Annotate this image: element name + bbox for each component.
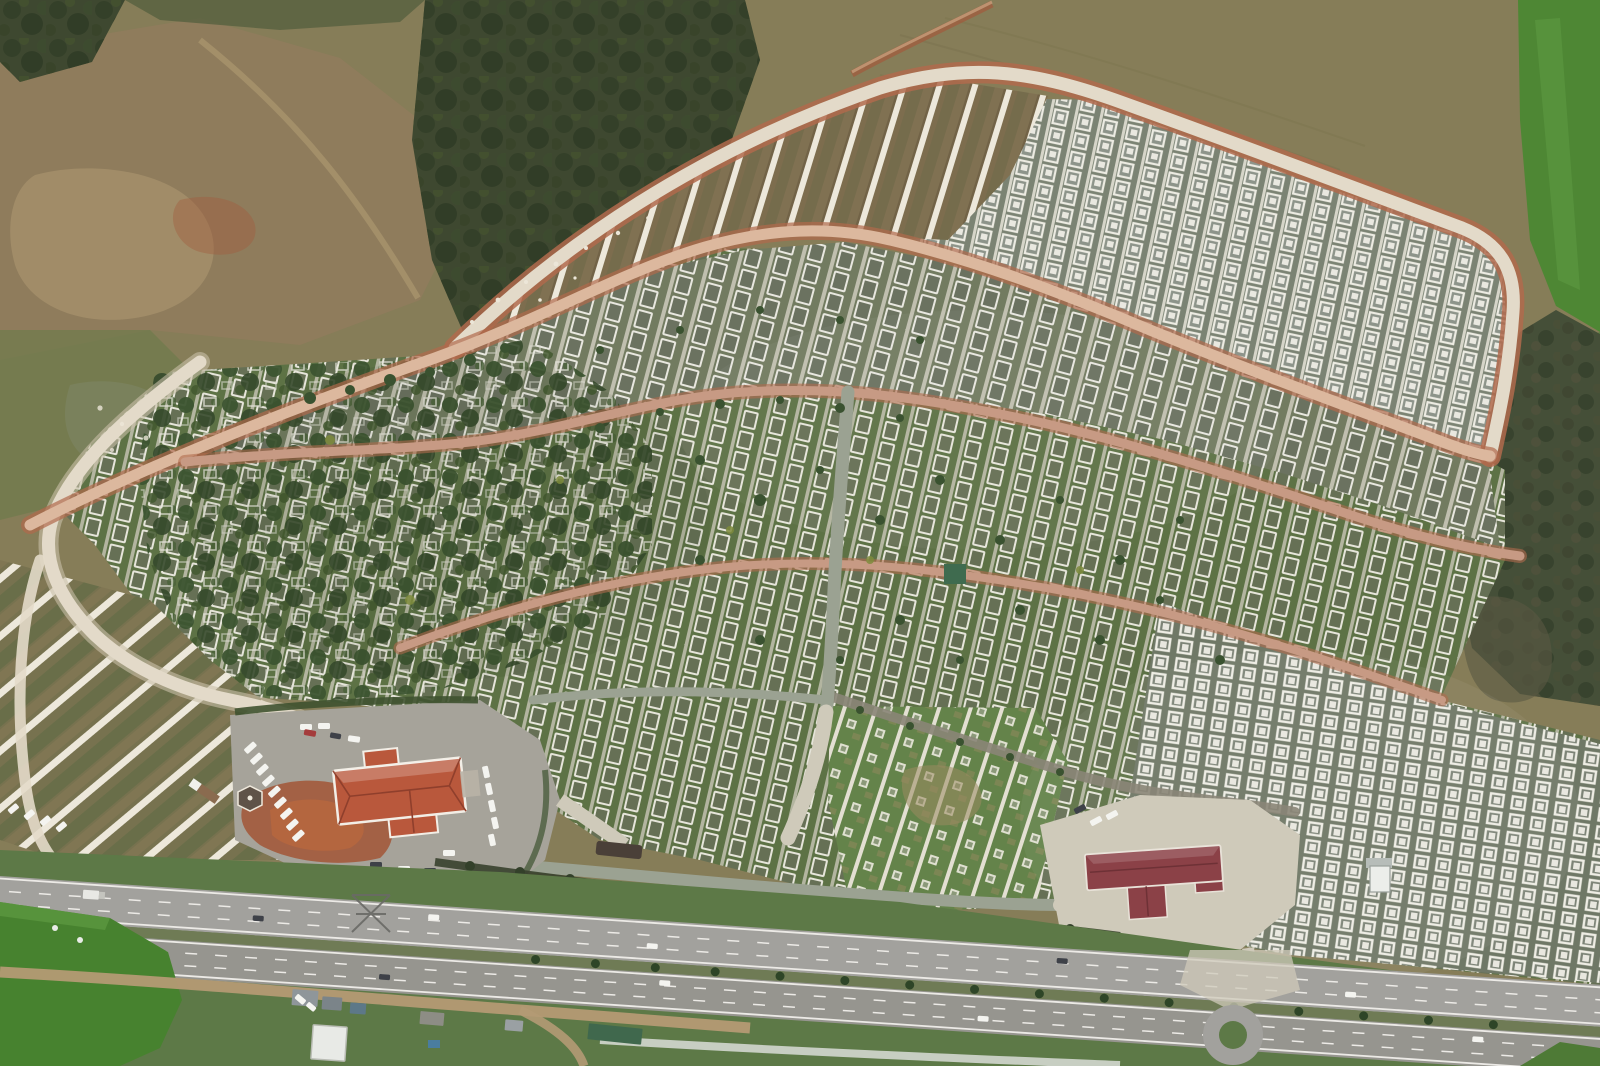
- roundabout-island: [1219, 1021, 1247, 1049]
- aerial-photo-cemetery: [0, 0, 1600, 1066]
- blue-tarp: [428, 1040, 440, 1048]
- white-hangar: [311, 1025, 347, 1061]
- burial-tent: [944, 564, 966, 584]
- kiosk: [1370, 866, 1390, 892]
- gazebo: [238, 786, 262, 811]
- scene-canvas: [0, 0, 1600, 1066]
